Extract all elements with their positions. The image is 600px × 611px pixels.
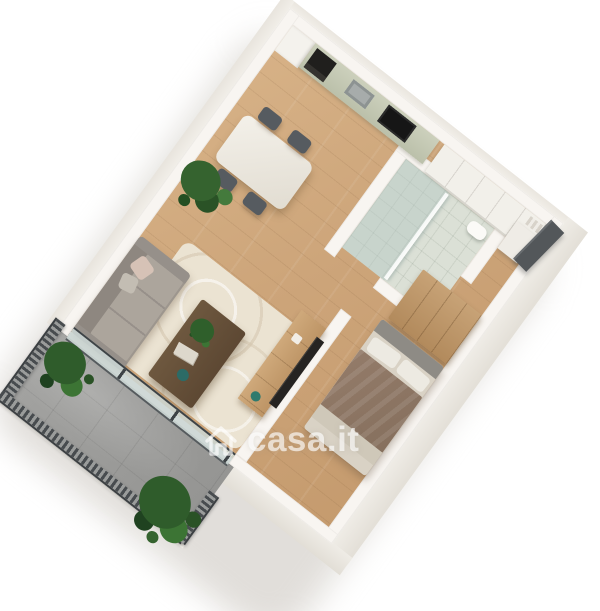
floorplan-render: casa.it: [0, 0, 600, 611]
house-outline-icon: [202, 421, 240, 459]
watermark-text: casa.it: [247, 420, 359, 460]
apartment-plan: [0, 8, 600, 611]
watermark: casa.it: [202, 414, 422, 466]
